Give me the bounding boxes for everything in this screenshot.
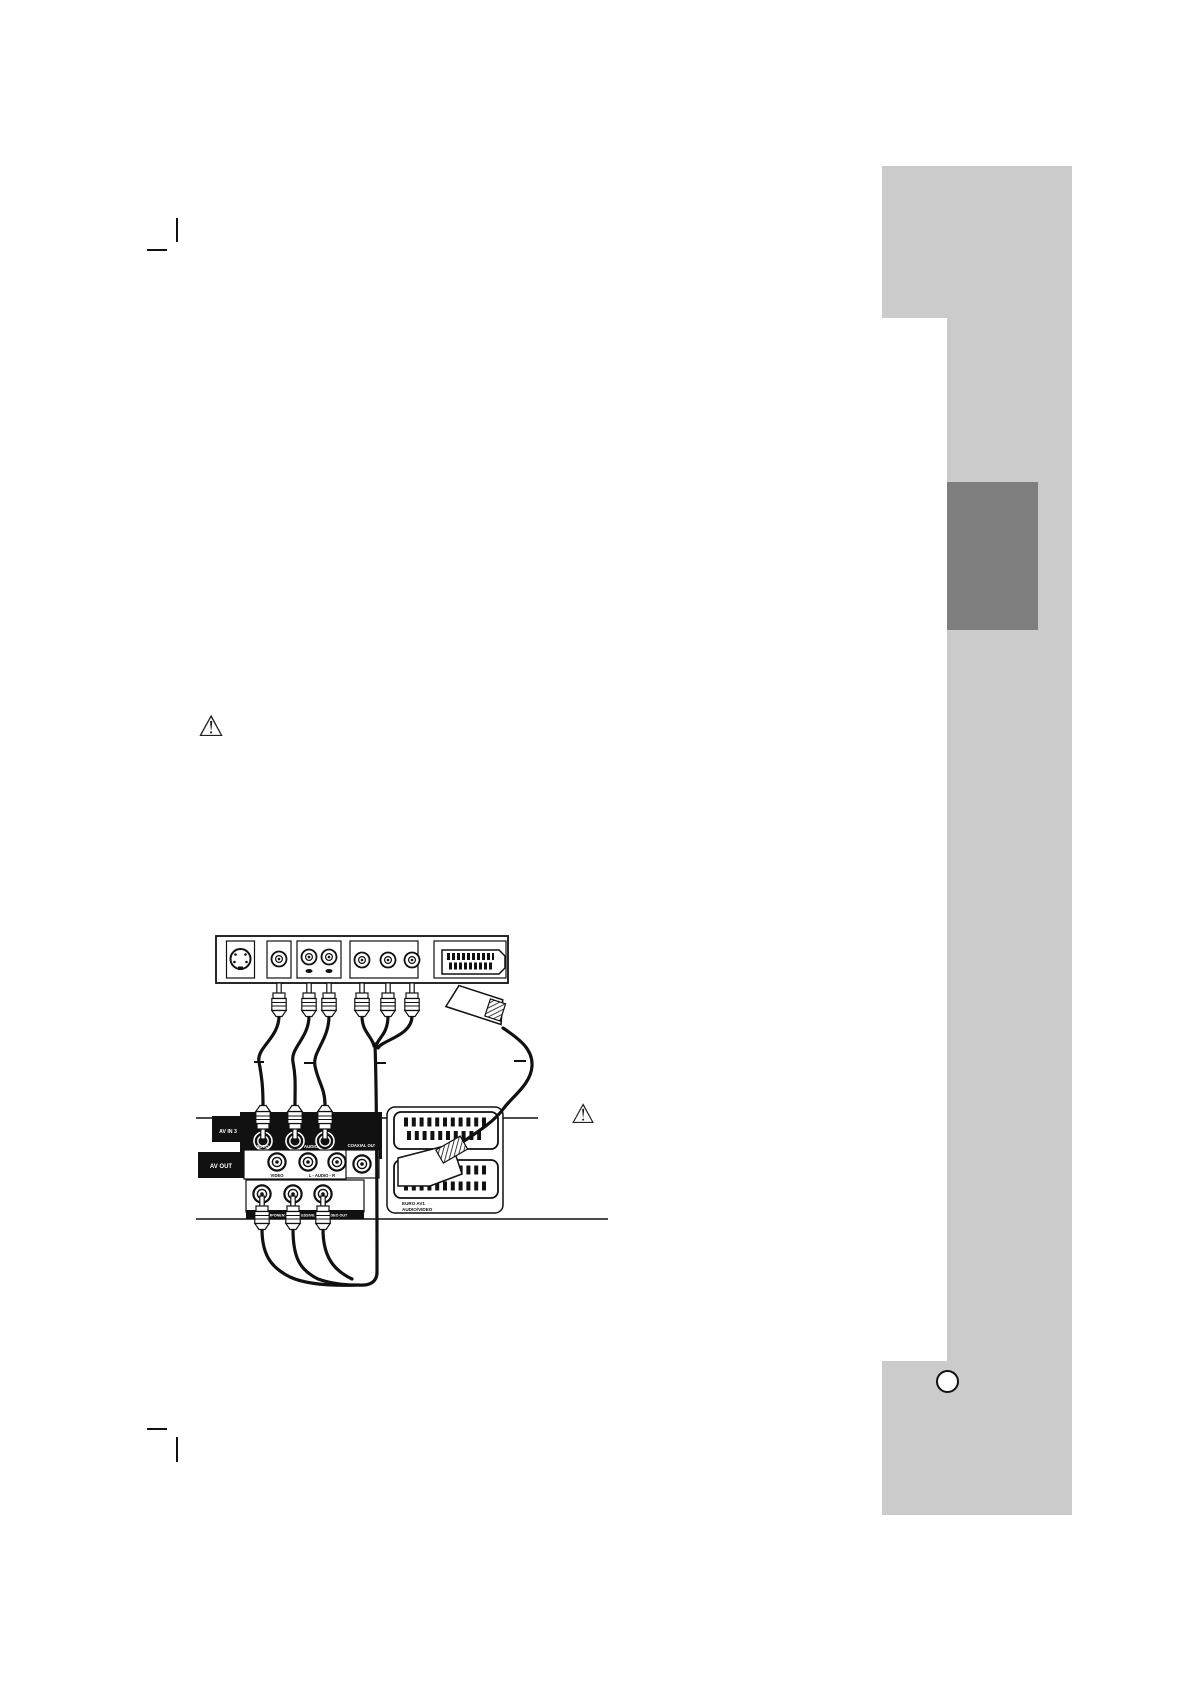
coaxial-jack — [353, 1155, 370, 1172]
scart-label-line2: AUDIO/VIDEO — [402, 1207, 433, 1212]
av-in-audio-label: AUDIO — [304, 1144, 319, 1149]
av-in-label: AV IN 3 — [219, 1129, 237, 1135]
s-video-port — [231, 949, 251, 970]
av-out-video-label: VIDEO — [270, 1173, 284, 1178]
connection-diagram: AV IN 3 AV OUT VIDEO AUDIO COAXIAL OUT V… — [0, 0, 1190, 1684]
coaxial-label: COAXIAL OUT — [348, 1143, 377, 1148]
tv-scart-plug — [446, 984, 509, 1025]
tv-panel — [216, 936, 508, 983]
av-out-audio-label: L - AUDIO - R — [309, 1173, 335, 1178]
cable-ticks — [254, 1061, 526, 1063]
scart-label-line1: EURO AV1 — [402, 1201, 425, 1206]
manual-page: ⚠ ⚠ — [0, 0, 1190, 1684]
av-in-video-label: VIDEO — [255, 1144, 269, 1149]
av-out-label: AV OUT — [210, 1164, 233, 1170]
tv-scart-socket — [442, 950, 505, 974]
component-label: COMPONENT/PROGRESSIVE SCAN VIDEO OUT — [263, 1214, 348, 1218]
